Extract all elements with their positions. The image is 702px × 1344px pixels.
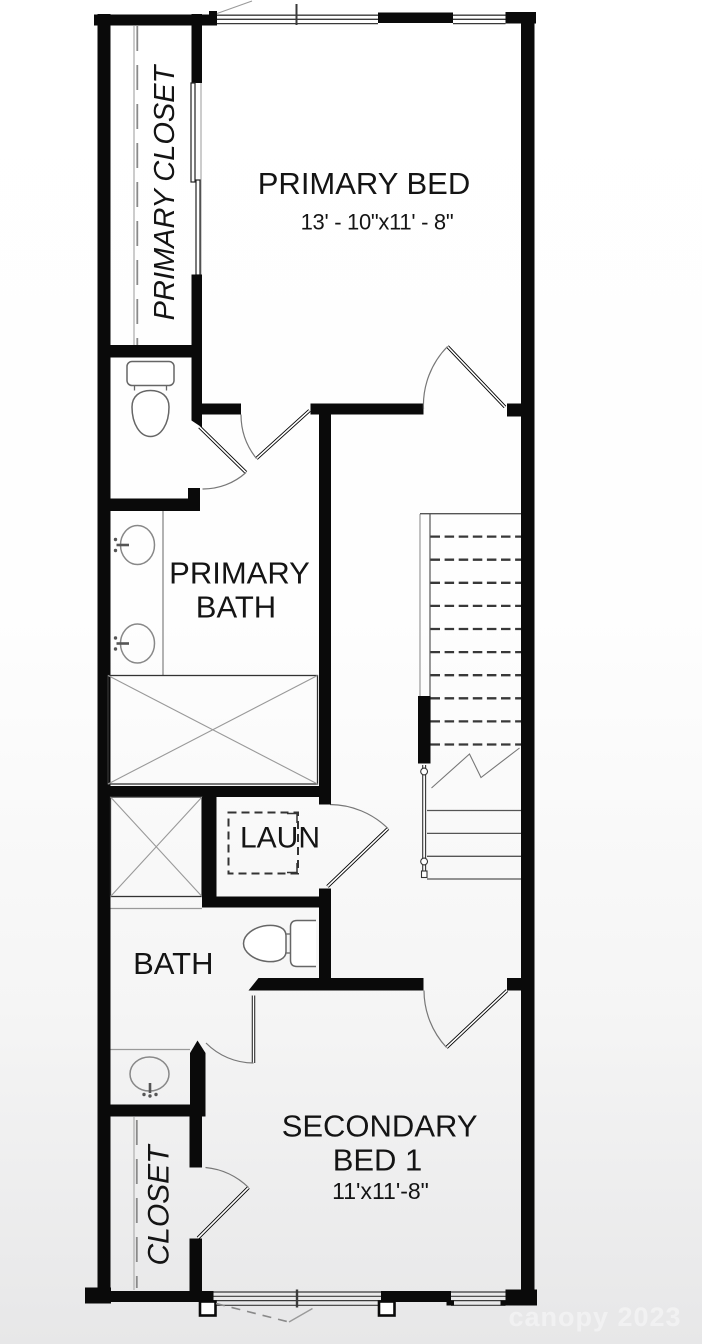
svg-text:CLOSET: CLOSET (143, 1143, 176, 1266)
svg-text:SECONDARY: SECONDARY (282, 1109, 478, 1144)
svg-text:PRIMARY CLOSET: PRIMARY CLOSET (149, 63, 181, 320)
svg-text:LAUN: LAUN (240, 822, 320, 855)
svg-text:BATH: BATH (133, 946, 213, 981)
svg-text:PRIMARY: PRIMARY (169, 556, 310, 591)
svg-text:BATH: BATH (196, 590, 276, 625)
svg-text:PRIMARY BED: PRIMARY BED (258, 166, 470, 201)
svg-text:BED 1: BED 1 (333, 1143, 423, 1178)
svg-text:13' - 10"x11' - 8": 13' - 10"x11' - 8" (301, 210, 454, 235)
svg-text:canopy 2023: canopy 2023 (508, 1302, 681, 1332)
svg-text:11'x11'-8": 11'x11'-8" (332, 1178, 429, 1204)
